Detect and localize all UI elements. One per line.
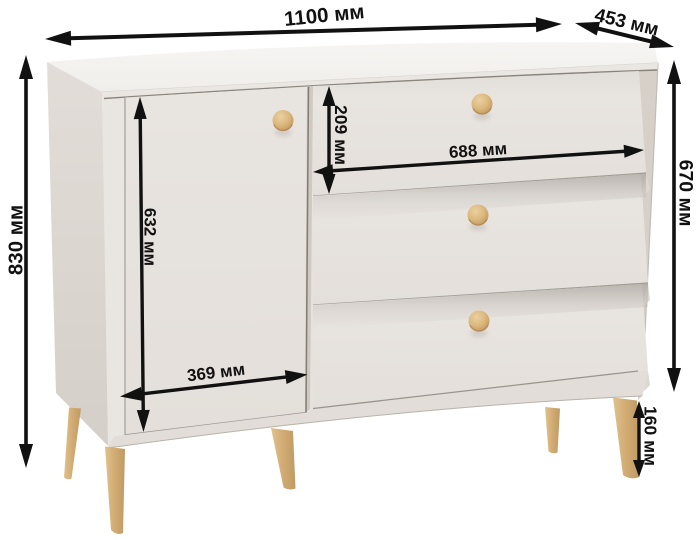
svg-text:209 мм: 209 мм: [331, 105, 351, 165]
svg-text:632 мм: 632 мм: [141, 208, 160, 266]
svg-text:830 мм: 830 мм: [5, 205, 28, 275]
svg-text:160 мм: 160 мм: [641, 406, 661, 466]
svg-text:688 мм: 688 мм: [448, 139, 507, 162]
svg-text:670 мм: 670 мм: [675, 160, 697, 227]
